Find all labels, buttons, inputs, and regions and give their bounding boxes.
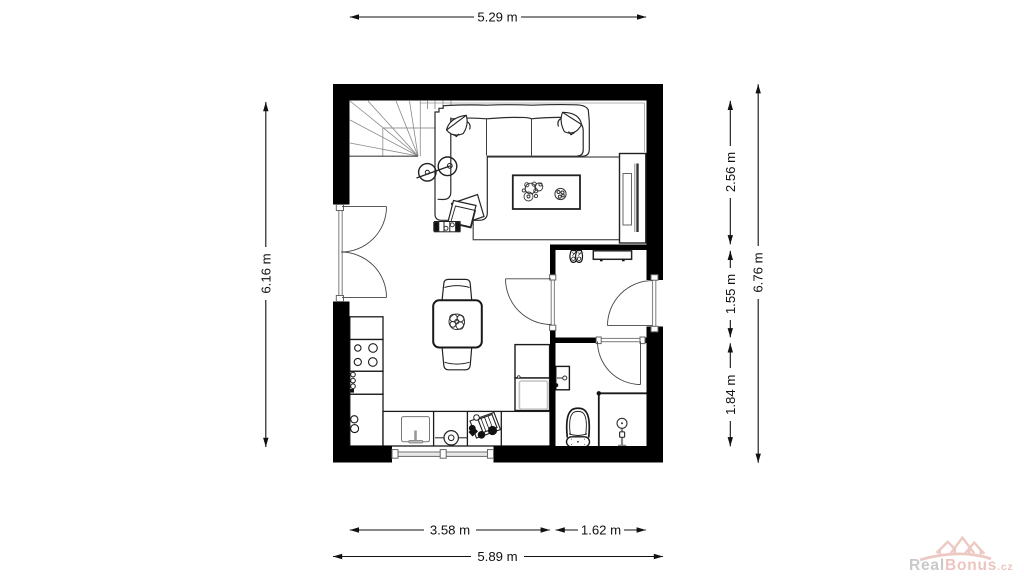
svg-text:1.55 m: 1.55 m (723, 274, 738, 314)
svg-text:3.58 m: 3.58 m (430, 523, 470, 538)
svg-text:5.89 m: 5.89 m (477, 549, 517, 564)
svg-text:1.84 m: 1.84 m (723, 375, 738, 415)
svg-text:1.62 m: 1.62 m (581, 523, 621, 538)
svg-text:6.76 m: 6.76 m (751, 252, 766, 292)
svg-text:5.29 m: 5.29 m (477, 10, 517, 25)
svg-text:6.16 m: 6.16 m (258, 253, 273, 293)
svg-text:2.56 m: 2.56 m (723, 152, 738, 192)
